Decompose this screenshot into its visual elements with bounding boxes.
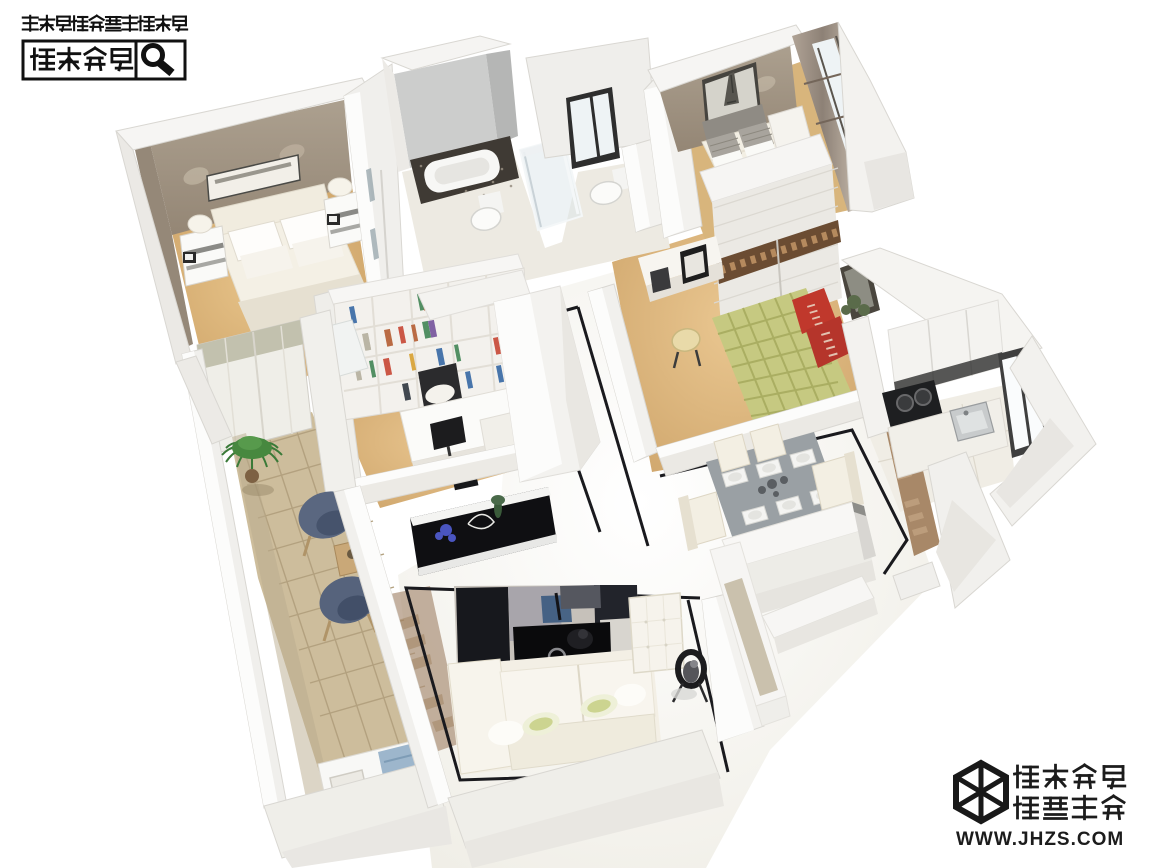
svg-text:WWW.JHZS.COM: WWW.JHZS.COM — [956, 829, 1124, 850]
